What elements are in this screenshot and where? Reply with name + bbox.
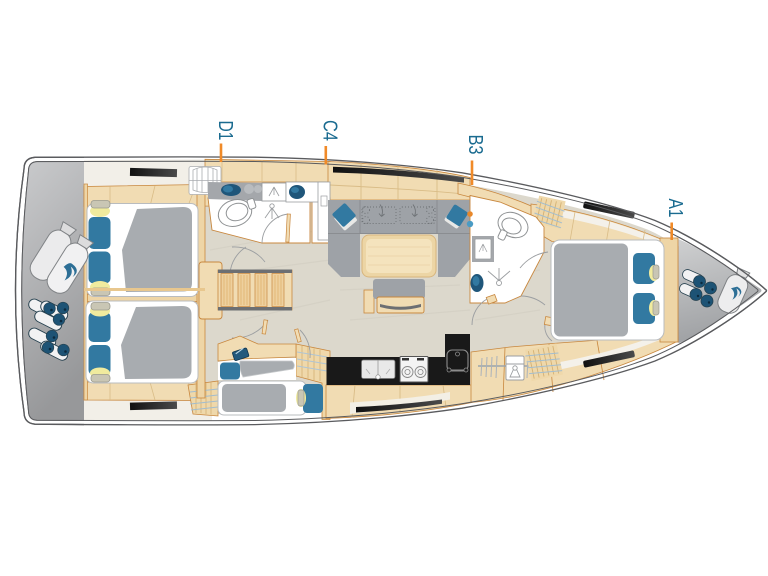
svg-text:A1: A1: [664, 199, 686, 218]
svg-text:B3: B3: [465, 135, 488, 155]
svg-text:C4: C4: [319, 120, 342, 141]
svg-text:D1: D1: [215, 121, 237, 141]
